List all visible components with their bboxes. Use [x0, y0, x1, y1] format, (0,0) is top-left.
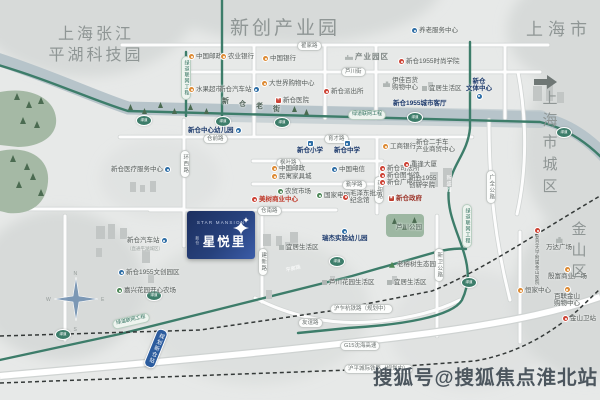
green-icon — [278, 189, 283, 194]
map-poi: 百联金山 购物中心 — [554, 287, 580, 308]
poi-label: 新仓医疗服务中心 — [111, 166, 163, 173]
planned-station-marker: 规划新仓站 — [143, 327, 169, 369]
map-poi: 恒家中心 — [518, 287, 551, 294]
poi-label: 新仓中心幼儿园 — [188, 127, 234, 134]
map-poi: 新仓1955 创新学院 — [409, 175, 436, 190]
map-poi: 芦川花园生活区 — [322, 279, 375, 286]
map-poi: 美树商业中心 — [252, 196, 298, 203]
location-map: N S E W 翟家路芦川街仓前路育才路枫叶路勤学路仓南路友谊路沪乍杭铁路（规划… — [0, 0, 600, 400]
building-icon — [387, 280, 392, 285]
road-label: 友谊路 — [298, 318, 323, 328]
poi-label: 新仓 文体中心 — [466, 78, 492, 93]
post-icon — [189, 54, 194, 59]
road-label: 芦川街 — [341, 67, 366, 77]
map-poi: 中国邮政 — [189, 53, 222, 60]
map-poi: 农业银行 — [221, 53, 254, 60]
blue-icon — [165, 167, 170, 172]
poi-label: 嘉兴花园开心农场 — [124, 287, 176, 294]
poi-label: 重逢大厦 — [411, 161, 437, 168]
buildings-icon — [556, 237, 563, 243]
blue-icon — [332, 167, 337, 172]
building-icon — [422, 86, 427, 91]
poi-label: 中国邮政 — [279, 165, 305, 172]
poi-label: 新仓医院 — [283, 97, 309, 104]
map-poi: 新仓1955时尚学院 — [399, 58, 459, 65]
map-poi: 复旦大学附属金山医院 — [535, 228, 540, 285]
watermark-text: 搜狐号@搜狐焦点淮北站 — [373, 361, 598, 390]
red-icon — [380, 166, 385, 171]
map-poi: 新仓中心幼儿园 — [188, 127, 241, 134]
orange-icon — [518, 288, 523, 293]
area-label-jinshan: 金山区 — [568, 221, 588, 284]
map-poi: 新仓中学 — [334, 141, 360, 154]
poi-label: 新仓1955 创新学院 — [409, 175, 436, 190]
map-poi: 宜居生活区 — [422, 85, 462, 92]
poi-label: 新仓1955时尚学院 — [406, 58, 459, 65]
bank-icon — [221, 54, 226, 59]
map-poi: 大世界购物中心 — [262, 80, 315, 87]
map-poi: 宜居生活区 — [279, 244, 319, 251]
poi-label: 美树商业中心 — [259, 196, 298, 203]
map-poi: 水果超市 — [189, 86, 222, 93]
red-icon — [535, 228, 540, 233]
poi-label: 新仓小学 — [297, 147, 323, 154]
map-poi: 中国邮政 — [272, 165, 305, 172]
greenway-badge-icon: 绿道 — [274, 117, 290, 128]
map-poi: 新仓小学 — [297, 141, 323, 154]
map-poi: 农贸市场 — [278, 188, 311, 195]
greenway-badge-icon: 绿道 — [461, 277, 477, 288]
map-poi: 重逢大厦 — [404, 161, 437, 168]
road-label: 平廊路 — [282, 264, 304, 276]
map-poi: 新仓1955文创园区 — [119, 269, 179, 276]
poi-label: 毛泽东批示 纪念馆 — [350, 190, 383, 205]
map-poi: 嘉兴花园开心农场 — [117, 287, 176, 294]
map-poi: 新仓二手车 产业商贸中心 — [416, 139, 455, 154]
red-icon — [343, 195, 348, 200]
poi-label: 农贸市场 — [285, 188, 311, 195]
green-icon — [117, 288, 122, 293]
blue-icon — [236, 128, 241, 133]
buildings-icon — [383, 81, 390, 87]
bank-icon — [263, 56, 268, 61]
greenway-badge-icon: 绿道 — [407, 112, 423, 123]
poi-label: 金山卫站 — [570, 315, 596, 322]
sparkle-star-icon — [233, 217, 250, 239]
greenway-badge-icon: 绿道 — [329, 256, 345, 267]
map-poi: 瑞杰实验幼儿园 — [322, 229, 368, 242]
old-street-label: 街 — [273, 106, 280, 114]
road-label: 仓前路 — [203, 134, 228, 144]
poi-label: 新仓中学 — [334, 147, 360, 154]
poi-label: 工商银行 — [390, 143, 416, 150]
road-label: 仓南路 — [257, 206, 282, 216]
old-street-label: 老 — [256, 103, 263, 111]
bus-icon — [162, 238, 167, 243]
poi-label: 农业银行 — [228, 53, 254, 60]
poi-label: 宜居生活区 — [394, 279, 427, 286]
map-poi: 养老服务中心 — [412, 27, 458, 34]
poi-label: 老榕树生态园 — [397, 261, 436, 268]
poi-label: 伊佳百货 购物中心 — [392, 77, 418, 92]
orange-icon — [189, 87, 194, 92]
gov-icon — [389, 196, 394, 201]
greenway-badge-icon: 绿道 — [215, 116, 231, 127]
map-poi: 金山卫站 — [563, 315, 596, 322]
tree-icon — [389, 262, 395, 268]
poi-label: 新仓1955城市客厅 — [393, 100, 446, 107]
poi-label: 新仓汽车站 — [127, 237, 160, 244]
road-label: 环西路 — [180, 150, 190, 178]
area-label-shanghai: 上海市 — [526, 19, 592, 41]
road-label: G15沈海高速 — [340, 341, 380, 351]
road-label: 绿道联网工程 — [462, 204, 472, 248]
bus-icon — [254, 87, 259, 92]
poi-label: 芦川花园生活区 — [329, 279, 375, 286]
red-icon — [380, 173, 385, 178]
road-label: 新盛路 — [444, 172, 452, 196]
road-label: 广全公路 — [486, 170, 496, 204]
blue-icon — [342, 229, 347, 234]
poi-label: 百联金山 购物中心 — [554, 293, 580, 308]
map-poi: 宜居生活区 — [387, 279, 427, 286]
factory-icon — [345, 55, 353, 60]
red-icon — [404, 162, 409, 167]
road-label: 绿道联网工程 — [348, 110, 386, 120]
old-street-label: 仓 — [239, 101, 246, 109]
poi-label: 新仓政府 — [396, 195, 422, 202]
map-poi: 产业园区 — [345, 53, 389, 62]
project-card-star-mansion: STAR MANSION 新仓 星悦里 — [187, 211, 255, 259]
poi-label: 产业园区 — [355, 53, 389, 62]
greenway-badge-icon: 绿道 — [55, 329, 71, 340]
poi-label: 中国银行 — [270, 55, 296, 62]
post-icon — [272, 166, 277, 171]
map-poi: 新仓医疗服务中心 — [111, 166, 170, 173]
map-poi: 新仓1955城市客厅 — [393, 100, 446, 107]
building-icon — [322, 280, 327, 285]
map-poi: 伊佳百货 购物中心 — [383, 77, 418, 92]
blue-icon — [477, 94, 482, 99]
map-poi: 老榕树生态园 — [389, 261, 436, 268]
rail-icon — [563, 316, 568, 321]
school-icon — [345, 141, 350, 146]
orange-icon — [565, 287, 570, 292]
poi-label: 新仓汽车站 — [219, 86, 252, 93]
map-poi: 中国电信 — [332, 166, 365, 173]
red-icon — [380, 180, 385, 185]
poi-label: 新仓派出所 — [331, 88, 364, 95]
map-poi: 工商银行 — [383, 143, 416, 150]
map-poi: 新仓 文体中心 — [466, 78, 492, 99]
poi-label: 大世界购物中心 — [269, 80, 315, 87]
blue-icon — [119, 270, 124, 275]
map-poi: 民寓家具城 — [272, 173, 312, 180]
poi-label: 宜居生活区 — [429, 85, 462, 92]
poi-label: 复旦大学附属金山医院 — [535, 235, 540, 285]
orange-icon — [262, 81, 267, 86]
poi-label: 中国邮政 — [196, 53, 222, 60]
poi-label: 芦川公园 — [396, 224, 422, 231]
project-district-label: 新仓 — [196, 236, 201, 246]
red-icon — [252, 197, 257, 202]
map-poi: 芦川公园 — [396, 224, 422, 231]
map-poi: 新仓政府 — [389, 195, 422, 202]
map-poi: 新仓医院 — [276, 97, 309, 104]
orange-icon — [272, 174, 277, 179]
cross-icon — [276, 98, 281, 103]
greenway-badge-icon: 绿道 — [136, 115, 152, 126]
red-icon — [399, 59, 404, 64]
road-label: 建新路 — [258, 248, 268, 276]
road-label: 绿道联网工程 — [111, 312, 150, 330]
red-icon — [324, 89, 329, 94]
old-street-label: 新 — [222, 98, 229, 106]
road-label: 翟家路 — [297, 41, 322, 51]
poi-label: 新仓1955文创园区 — [126, 269, 179, 276]
area-label-zhangjiang-park: 上海张江 平湖科技园 — [38, 25, 154, 67]
map-poi: 新仓派出所 — [324, 88, 364, 95]
school-icon — [308, 141, 313, 146]
poi-label: 宜居生活区 — [286, 244, 319, 251]
bank-icon — [383, 144, 388, 149]
road-label: 勤学路 — [342, 180, 367, 190]
area-label-xinchuang-park: 新创产业园 — [210, 17, 360, 42]
map-poi: 毛泽东批示 纪念馆 — [343, 190, 383, 205]
area-label-shanghai-urban: 上海市城区 — [539, 90, 559, 200]
poi-label: 养老服务中心 — [419, 27, 458, 34]
building-icon — [279, 245, 284, 250]
poi-label: 恒家中心 — [525, 287, 551, 294]
road-label: 沪乍杭铁路（规划中） — [330, 304, 393, 314]
poi-label: 民寓家具城 — [279, 173, 312, 180]
blue-icon — [412, 28, 417, 33]
green-icon — [317, 193, 322, 198]
poi-label: 中国电信 — [339, 166, 365, 173]
poi-label: 瑞杰实验幼儿园 — [322, 235, 368, 242]
map-poi: 新仓汽车站 — [219, 86, 259, 93]
map-poi: 中国银行 — [263, 55, 296, 62]
poi-label: 新仓二手车 产业商贸中心 — [416, 139, 455, 154]
